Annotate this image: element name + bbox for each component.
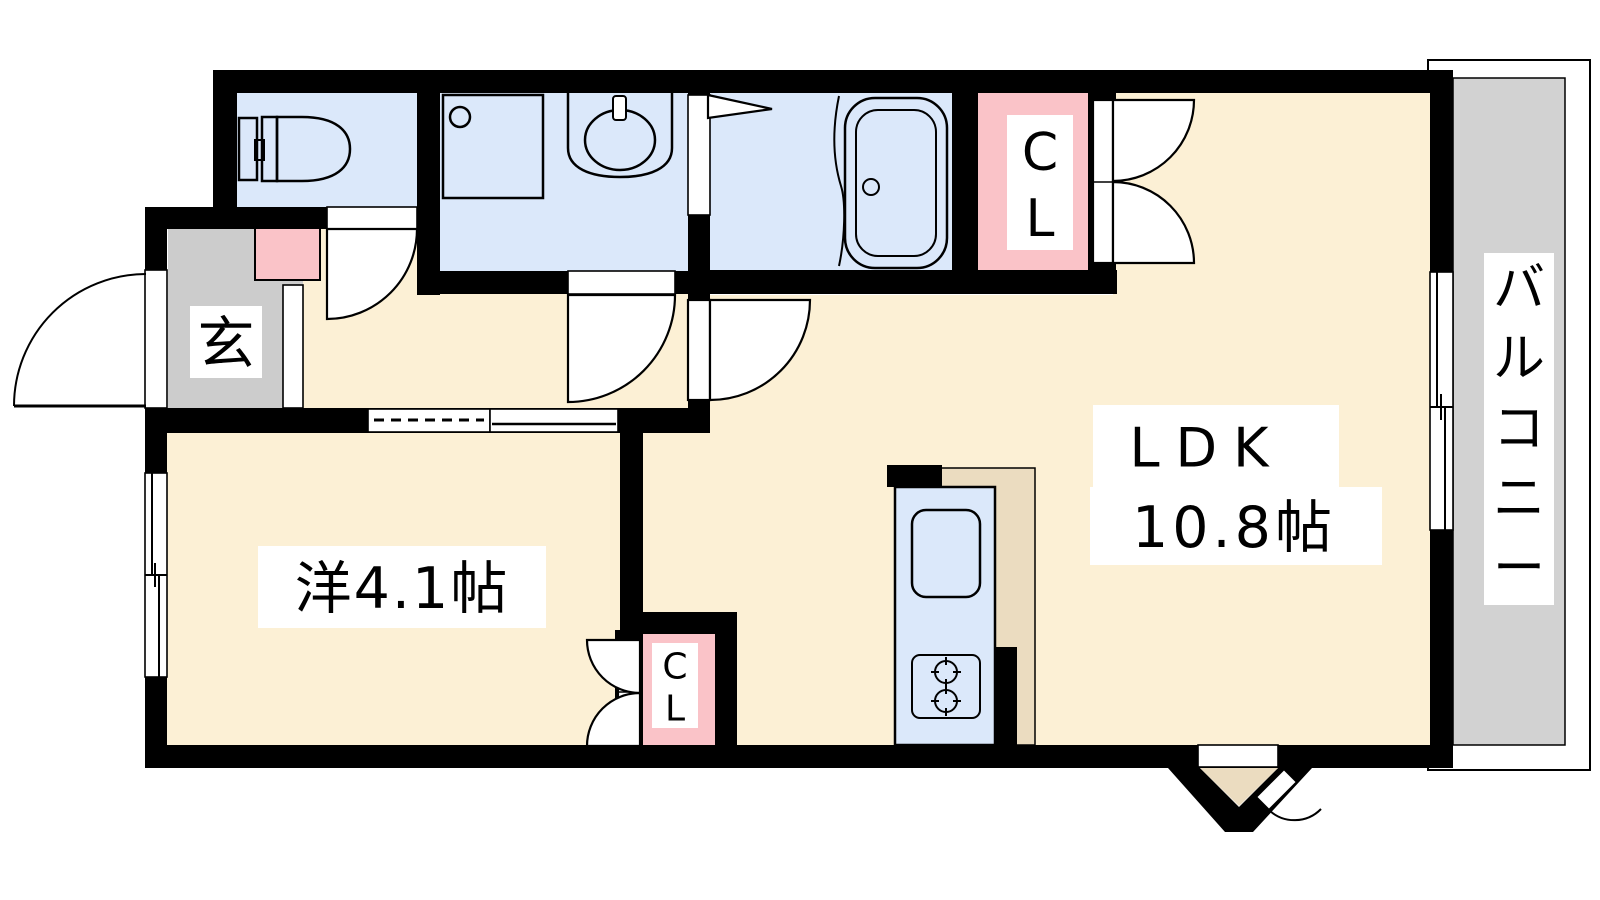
bathroom-floor	[710, 93, 952, 270]
western-room-window	[145, 473, 167, 677]
balcony-label-char: バ	[1493, 259, 1545, 319]
entrance-door-swing-arc	[14, 274, 146, 406]
washroom-door-opening	[568, 271, 675, 294]
closet-ldk-label-l: L	[1026, 189, 1055, 249]
washroom-floor	[440, 93, 688, 272]
entrance-door-opening	[145, 270, 167, 408]
kitchen-counter-icon	[895, 487, 995, 745]
balcony-label-char: コ	[1493, 399, 1545, 459]
bath-door-opening	[688, 95, 710, 215]
ldk-balcony-window	[1430, 272, 1453, 530]
ldk-door-leaf	[688, 300, 710, 400]
sliding-door-panel	[490, 409, 618, 432]
closet-western-label-l: L	[665, 689, 685, 730]
bay-door-swing-arc	[1269, 809, 1321, 820]
balcony-label-char: ニ	[1493, 469, 1545, 529]
western-room-label: 洋4.1帖	[295, 556, 510, 622]
ldk-label: LDK	[1129, 417, 1284, 480]
ldk-size-label: 10.8帖	[1132, 495, 1336, 561]
shoe-cabinet	[255, 228, 320, 280]
closet-ldk-label-c: C	[1022, 123, 1058, 183]
floorplan-page: 玄 洋4.1帖 LDK 10.8帖 C L C L バ ル コ ニ ー	[0, 0, 1600, 900]
bay-opening	[1198, 745, 1278, 767]
genkan-step	[283, 285, 303, 408]
toilet-door-opening	[327, 207, 417, 229]
closet-western-label-c: C	[662, 647, 687, 688]
balcony-label-char: ー	[1493, 539, 1545, 599]
washbasin-tap	[613, 96, 626, 120]
genkan-label: 玄	[198, 311, 255, 377]
balcony-label-char: ル	[1493, 329, 1545, 389]
floorplan-drawing: 玄 洋4.1帖 LDK 10.8帖 C L C L バ ル コ ニ ー	[0, 0, 1600, 900]
